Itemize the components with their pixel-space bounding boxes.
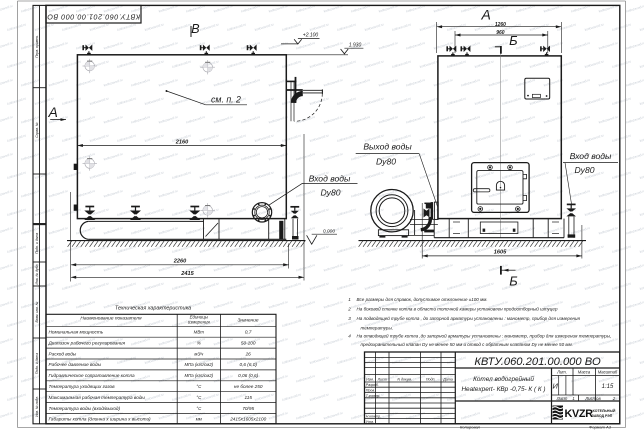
svg-text:1: 1 (572, 396, 574, 401)
svg-text:1260: 1260 (495, 22, 506, 28)
svg-text:И: И (553, 381, 559, 390)
svg-text:%: % (197, 340, 201, 345)
svg-text:KVZR: KVZR (565, 408, 594, 420)
svg-text:Изм.: Изм. (366, 377, 374, 381)
svg-text:115: 115 (244, 395, 252, 400)
svg-text:Масса: Масса (578, 370, 591, 375)
svg-text:см. п. 2: см. п. 2 (211, 94, 241, 104)
svg-text:На отводящей трубе котла ,до з: На отводящей трубе котла ,до запорной ар… (357, 333, 612, 339)
svg-text:1: 1 (348, 297, 351, 302)
svg-text:Формат А3: Формат А3 (589, 424, 612, 429)
svg-text:Листов: Листов (584, 396, 601, 401)
svg-text:Расход воды: Расход воды (49, 351, 77, 356)
svg-text:70/95: 70/95 (242, 406, 254, 411)
svg-text:0,7: 0,7 (245, 329, 252, 334)
svg-text:N докум.: N докум. (397, 377, 412, 381)
svg-text:2: 2 (347, 307, 351, 312)
svg-text:Подп.: Подп. (426, 377, 436, 381)
svg-text:Лит.: Лит. (556, 370, 567, 375)
svg-text:Температура уходящих газов: Температура уходящих газов (49, 384, 116, 389)
svg-text:Масштаб: Масштаб (598, 370, 618, 375)
svg-text:2160: 2160 (175, 140, 189, 146)
svg-text:Единицы: Единицы (190, 314, 209, 319)
svg-text:4: 4 (348, 334, 351, 339)
svg-text:Максимальная рабочая температу: Максимальная рабочая температура воды (49, 395, 146, 400)
svg-text:1605: 1605 (494, 250, 507, 256)
svg-text:А: А (481, 7, 491, 23)
svg-text:2415: 2415 (180, 271, 194, 277)
svg-text:Наименование показателя: Наименование показателя (80, 316, 142, 322)
svg-text:мм: мм (196, 416, 202, 421)
svg-text:КВТУ.060.201.00.000 ВО: КВТУ.060.201.00.000 ВО (474, 356, 601, 368)
svg-text:МПа (кгс/см2): МПа (кгс/см2) (184, 362, 213, 367)
svg-text:Значение: Значение (237, 318, 258, 324)
svg-text:Н.контр.: Н.контр. (366, 415, 381, 419)
svg-text:Инв. № дубл.: Инв. № дубл. (35, 264, 39, 285)
svg-text:Диапазон рабочего регулировани: Диапазон рабочего регулирования (48, 340, 126, 345)
svg-text:КВТУ.060.201.00.000 ВО: КВТУ.060.201.00.000 ВО (47, 12, 140, 21)
svg-text:Лист: Лист (377, 377, 387, 381)
svg-text:ЗАВОД РЭП: ЗАВОД РЭП (592, 414, 613, 418)
svg-text:предохранительный клапан Dу н: предохранительный клапан Dу не менее 50 … (361, 341, 573, 347)
svg-text:Dy80: Dy80 (320, 188, 340, 198)
svg-text:Вход воды: Вход воды (570, 151, 612, 161)
svg-text:Подп. и дата: Подп. и дата (35, 233, 39, 254)
svg-text:измерения: измерения (188, 320, 211, 325)
svg-text:960: 960 (496, 30, 505, 36)
svg-text:Dy80: Dy80 (574, 165, 594, 175)
svg-text:Техническая характеристика: Техническая характеристика (115, 306, 191, 312)
svg-text:На боковой стенке котла в обла: На боковой стенке котла в области топочн… (357, 306, 558, 312)
svg-text:А: А (48, 104, 58, 120)
svg-text:1.930: 1.930 (349, 42, 362, 48)
svg-text:Котел водогрейный: Котел водогрейный (473, 375, 534, 383)
svg-text:0,06 (0,6): 0,06 (0,6) (238, 373, 259, 378)
svg-text:На подводящей трубе котла , д: На подводящей трубе котла , до запорной … (357, 315, 581, 321)
svg-text:Рабочее давление воды: Рабочее давление воды (49, 362, 102, 367)
svg-text:Выход воды: Выход воды (363, 142, 412, 152)
svg-text:Справ. №: Справ. № (35, 122, 39, 138)
svg-text:Разраб.: Разраб. (366, 383, 379, 387)
svg-text:Вход воды: Вход воды (309, 173, 351, 183)
svg-text:+2.100: +2.100 (303, 33, 319, 39)
svg-text:°С: °С (196, 406, 202, 411)
svg-text:2415х1605х2100: 2415х1605х2100 (229, 416, 266, 421)
svg-text:Габариты котла (длинна х ширин: Габариты котла (длинна х ширина х высота… (49, 416, 152, 421)
svg-text:Пров.: Пров. (366, 388, 375, 392)
svg-text:Дата: Дата (442, 377, 452, 381)
svg-text:Инв. № подл.: Инв. № подл. (35, 396, 39, 417)
svg-text:не более 250: не более 250 (234, 384, 263, 389)
svg-text:Температура воды (вход/выход): Температура воды (вход/выход) (49, 406, 121, 411)
svg-text:Подп. и дата: Подп. и дата (35, 353, 39, 374)
svg-text:1:15: 1:15 (602, 384, 614, 390)
svg-text:Лист: Лист (556, 396, 568, 401)
svg-text:Б: Б (509, 273, 518, 288)
svg-text:0.000: 0.000 (323, 228, 335, 234)
svg-text:Dy80: Dy80 (376, 156, 396, 166)
svg-text:50-100: 50-100 (241, 340, 256, 345)
svg-text:температуры.: температуры. (361, 325, 394, 330)
svg-text:°С: °С (196, 384, 202, 389)
svg-text:Т.контр.: Т.контр. (366, 394, 381, 398)
svg-text:Б: Б (509, 33, 518, 48)
svg-text:МВт: МВт (194, 329, 205, 334)
svg-text:МПа (кгс/см2): МПа (кгс/см2) (184, 373, 213, 378)
svg-text:Все размеры для справок, допус: Все размеры для справок, допустимое откл… (357, 297, 488, 302)
svg-text:КОТЕЛЬНЫЙ: КОТЕЛЬНЫЙ (593, 409, 616, 413)
svg-text:м3/ч: м3/ч (194, 351, 204, 356)
svg-text:В: В (191, 22, 199, 36)
svg-text:Гидравлическое сопративление к: Гидравлическое сопративление котла (49, 373, 136, 378)
svg-text:Heatexpert- КВр -0,75- К ( К ): Heatexpert- КВр -0,75- К ( К ) (461, 386, 545, 393)
svg-text:0,6 (6,0): 0,6 (6,0) (239, 362, 257, 367)
svg-text:Перв. примен.: Перв. примен. (35, 35, 39, 58)
svg-text:Копировал: Копировал (460, 424, 481, 429)
svg-text:2260: 2260 (173, 259, 187, 265)
svg-text:Утв.: Утв. (366, 420, 374, 424)
svg-text:Номинальная мощность: Номинальная мощность (49, 329, 104, 334)
svg-text:°С: °С (196, 395, 202, 400)
svg-text:Взам. инв. №: Взам. инв. № (35, 301, 39, 322)
svg-text:3: 3 (348, 316, 351, 321)
svg-text:26: 26 (245, 351, 252, 356)
